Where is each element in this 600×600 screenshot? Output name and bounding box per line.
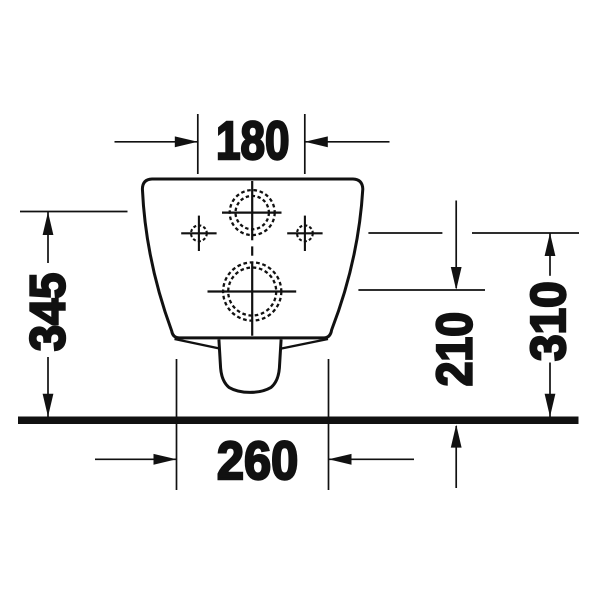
svg-text:260: 260 (217, 429, 298, 490)
svg-text:210: 210 (427, 312, 483, 386)
svg-text:345: 345 (20, 273, 75, 352)
svg-text:310: 310 (521, 281, 576, 361)
svg-text:180: 180 (216, 111, 289, 171)
